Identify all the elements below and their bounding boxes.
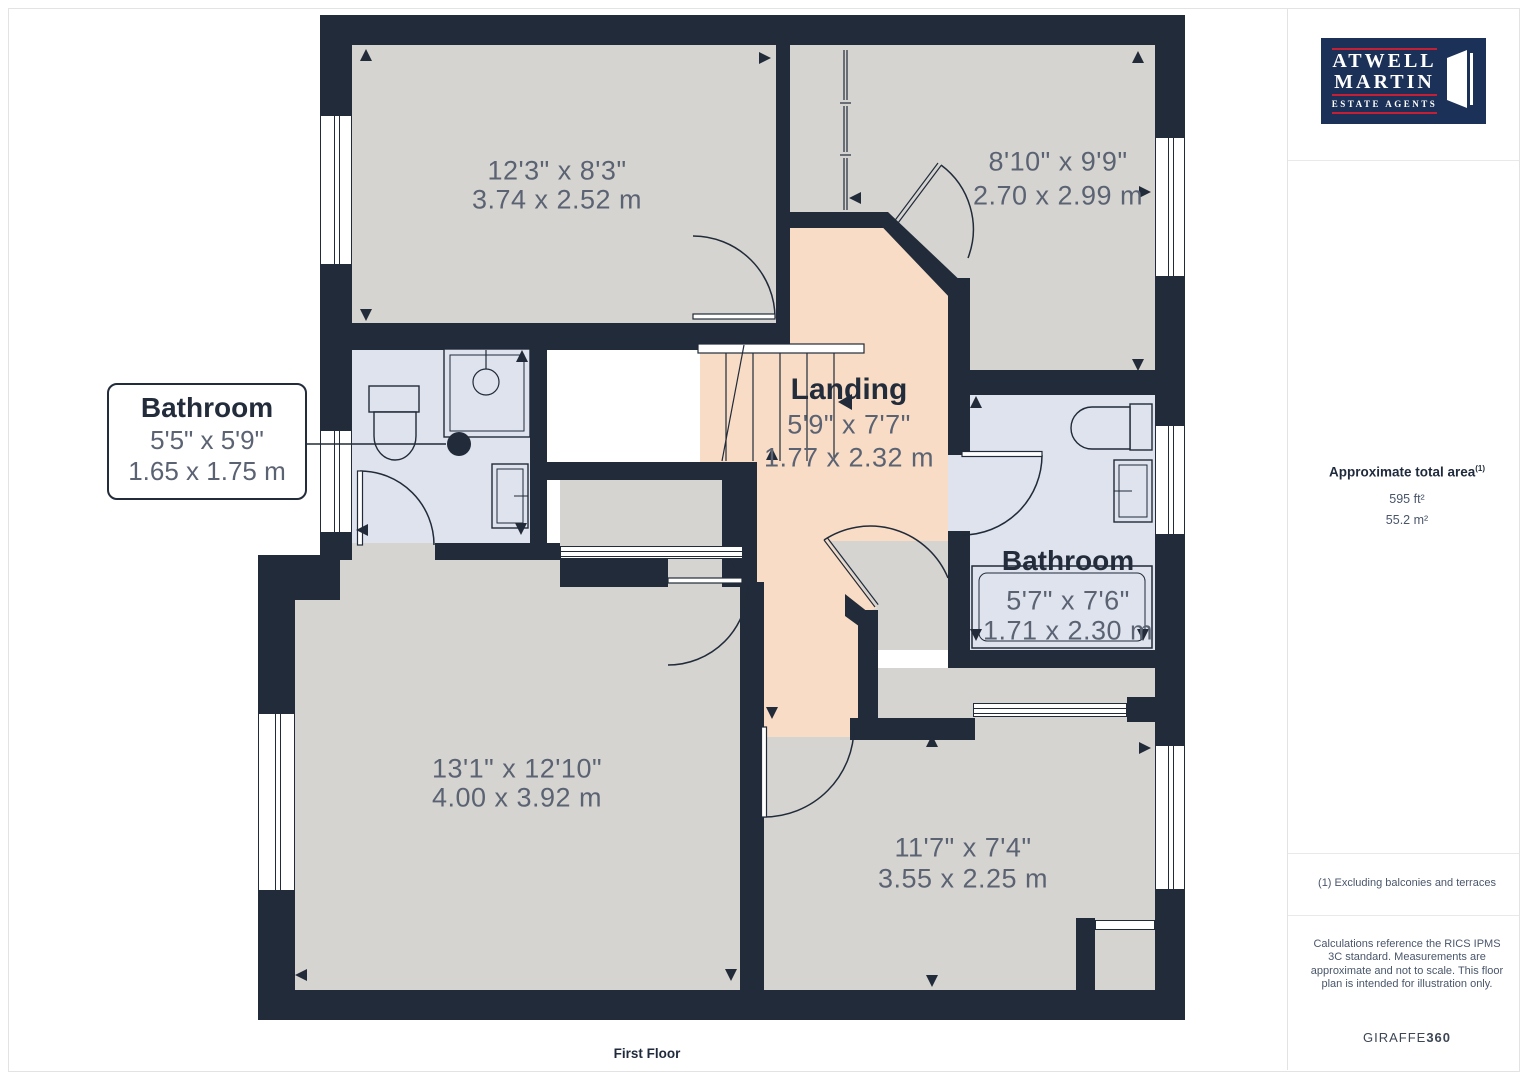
total-area-title-text: Approximate total area (1329, 465, 1475, 480)
brand: GIRAFFE360 (1287, 1030, 1527, 1045)
total-area-title: Approximate total area(1) (1287, 464, 1527, 480)
brand-name: GIRAFFE (1363, 1030, 1426, 1045)
brand-suffix: 360 (1426, 1030, 1451, 1045)
door-arc (824, 526, 948, 578)
room-dims-imperial: 11'7" x 7'4" (894, 833, 1031, 864)
logo-line1: ATWELL (1330, 51, 1439, 72)
logo-line3: ESTATE AGENTS (1330, 98, 1439, 110)
room-dims-imperial: 12'3" x 8'3" (487, 156, 626, 187)
room-dims-imperial: 8'10" x 9'9" (988, 147, 1127, 178)
room-dims-metric: 3.55 x 2.25 m (878, 864, 1048, 895)
disclaimer: Calculations reference the RICS IPMS 3C … (1305, 938, 1509, 992)
total-area-footnote-marker: (1) (1475, 464, 1485, 473)
logo-red-line (1332, 112, 1437, 114)
toilet-bowl (1071, 407, 1130, 449)
room-title-bathroom-left: Bathroom (109, 391, 305, 425)
room-dims-imperial: 5'9" x 7'7" (787, 410, 911, 441)
room-dims-metric: 1.77 x 2.32 m (764, 443, 934, 474)
door-arc (693, 236, 775, 318)
bathroom-callout: Bathroom 5'5" x 5'9" 1.65 x 1.75 m (107, 383, 307, 500)
room-dims-metric: 3.74 x 2.52 m (472, 185, 642, 216)
sidebar-section-line (1288, 160, 1519, 161)
door-arc (764, 727, 854, 817)
stairs-break-line (722, 345, 744, 461)
screen-line (840, 50, 851, 210)
door-leaf (358, 471, 363, 545)
total-area-block: Approximate total area(1) 595 ft² 55.2 m… (1287, 464, 1527, 531)
wall-diagonal (868, 212, 966, 300)
floorplan-page: { "page": { "floor_label": "First Floor"… (0, 0, 1527, 1080)
shower (444, 349, 530, 437)
room-dims-imperial: 13'1" x 12'10" (432, 754, 602, 785)
room-dims-metric: 2.70 x 2.99 m (973, 181, 1143, 212)
sidebar-section-line (1288, 853, 1519, 854)
room-title-bathroom-right: Bathroom (1002, 545, 1134, 577)
toilet-bowl (374, 412, 416, 460)
stairs-rail (698, 344, 864, 353)
door-leaf (824, 538, 878, 607)
room-dims-metric: 1.65 x 1.75 m (109, 456, 305, 487)
door-leaf (693, 314, 775, 319)
sidebar-divider (1287, 8, 1288, 1070)
floor-label: First Floor (614, 1046, 681, 1061)
toilet-tank (369, 386, 419, 412)
room-dims-metric: 4.00 x 3.92 m (432, 783, 602, 814)
footnote: (1) Excluding balconies and terraces (1287, 877, 1527, 889)
door-leaf (890, 163, 941, 229)
door-arc (360, 471, 434, 545)
door-leaf (962, 452, 1042, 457)
door-leaf (668, 578, 742, 583)
total-area-metric: 55.2 m² (1287, 510, 1527, 531)
room-dims-imperial: 5'7" x 7'6" (1006, 586, 1130, 617)
room-dims-imperial: 5'5" x 5'9" (109, 425, 305, 456)
wall-diagonal (845, 594, 878, 640)
agency-logo-text: ATWELL MARTIN ESTATE AGENTS (1330, 46, 1439, 116)
door-arc (668, 585, 748, 665)
agency-logo: ATWELL MARTIN ESTATE AGENTS (1321, 38, 1486, 124)
open-door-icon (1443, 46, 1477, 112)
total-area-imperial: 595 ft² (1287, 489, 1527, 510)
room-dims-metric: 1.71 x 2.30 m (983, 616, 1153, 647)
door-leaf (762, 727, 767, 817)
sidebar-section-line (1288, 915, 1519, 916)
door-arc (962, 455, 1042, 535)
logo-line2: MARTIN (1330, 72, 1439, 93)
logo-red-line (1332, 94, 1437, 96)
door-arc (941, 165, 973, 258)
floorplan-canvas: 12'3" x 8'3" 3.74 x 2.52 m 8'10" x 9'9" … (0, 0, 1287, 1080)
toilet-tank (1130, 404, 1152, 450)
room-title-landing: Landing (791, 373, 908, 407)
callout-dot (447, 432, 471, 456)
